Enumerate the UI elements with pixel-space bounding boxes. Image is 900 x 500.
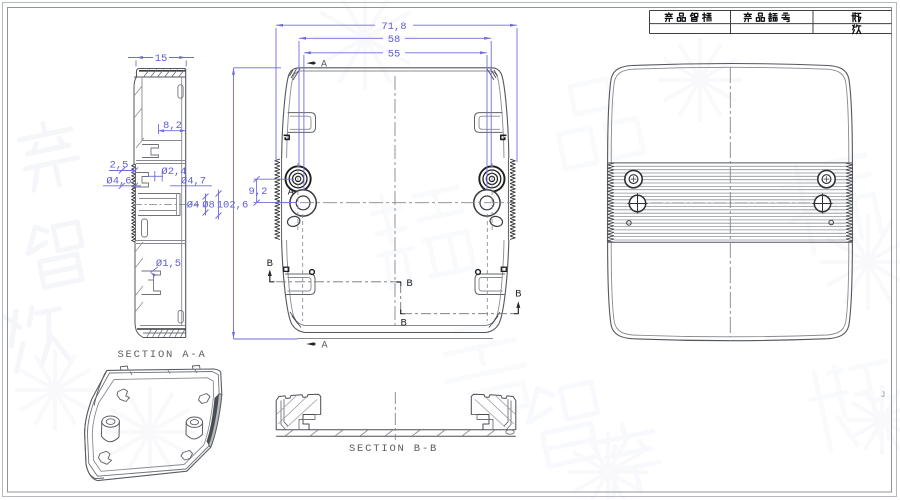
svg-text:A: A xyxy=(321,340,327,351)
svg-text:B: B xyxy=(406,278,412,290)
svg-text:15: 15 xyxy=(155,53,168,65)
svg-text:B: B xyxy=(400,318,406,330)
svg-text:J: J xyxy=(881,391,886,400)
svg-text:71,8: 71,8 xyxy=(381,21,406,33)
svg-text:2,5: 2,5 xyxy=(110,160,129,172)
svg-text:B: B xyxy=(515,289,521,301)
svg-text:SECTION B-B: SECTION B-B xyxy=(349,443,438,455)
svg-text:Ø4: Ø4 xyxy=(187,200,200,212)
svg-text:A: A xyxy=(288,188,294,199)
svg-text:Ø1,5: Ø1,5 xyxy=(156,258,181,270)
svg-text:A: A xyxy=(321,60,327,71)
svg-text:55: 55 xyxy=(388,48,401,60)
svg-text:102,6: 102,6 xyxy=(217,200,249,212)
svg-text:58: 58 xyxy=(388,34,401,46)
svg-text:8,2: 8,2 xyxy=(163,120,182,132)
svg-text:9,2: 9,2 xyxy=(249,186,268,198)
svg-text:SECTION A-A: SECTION A-A xyxy=(117,349,206,361)
svg-text:B: B xyxy=(267,258,273,270)
